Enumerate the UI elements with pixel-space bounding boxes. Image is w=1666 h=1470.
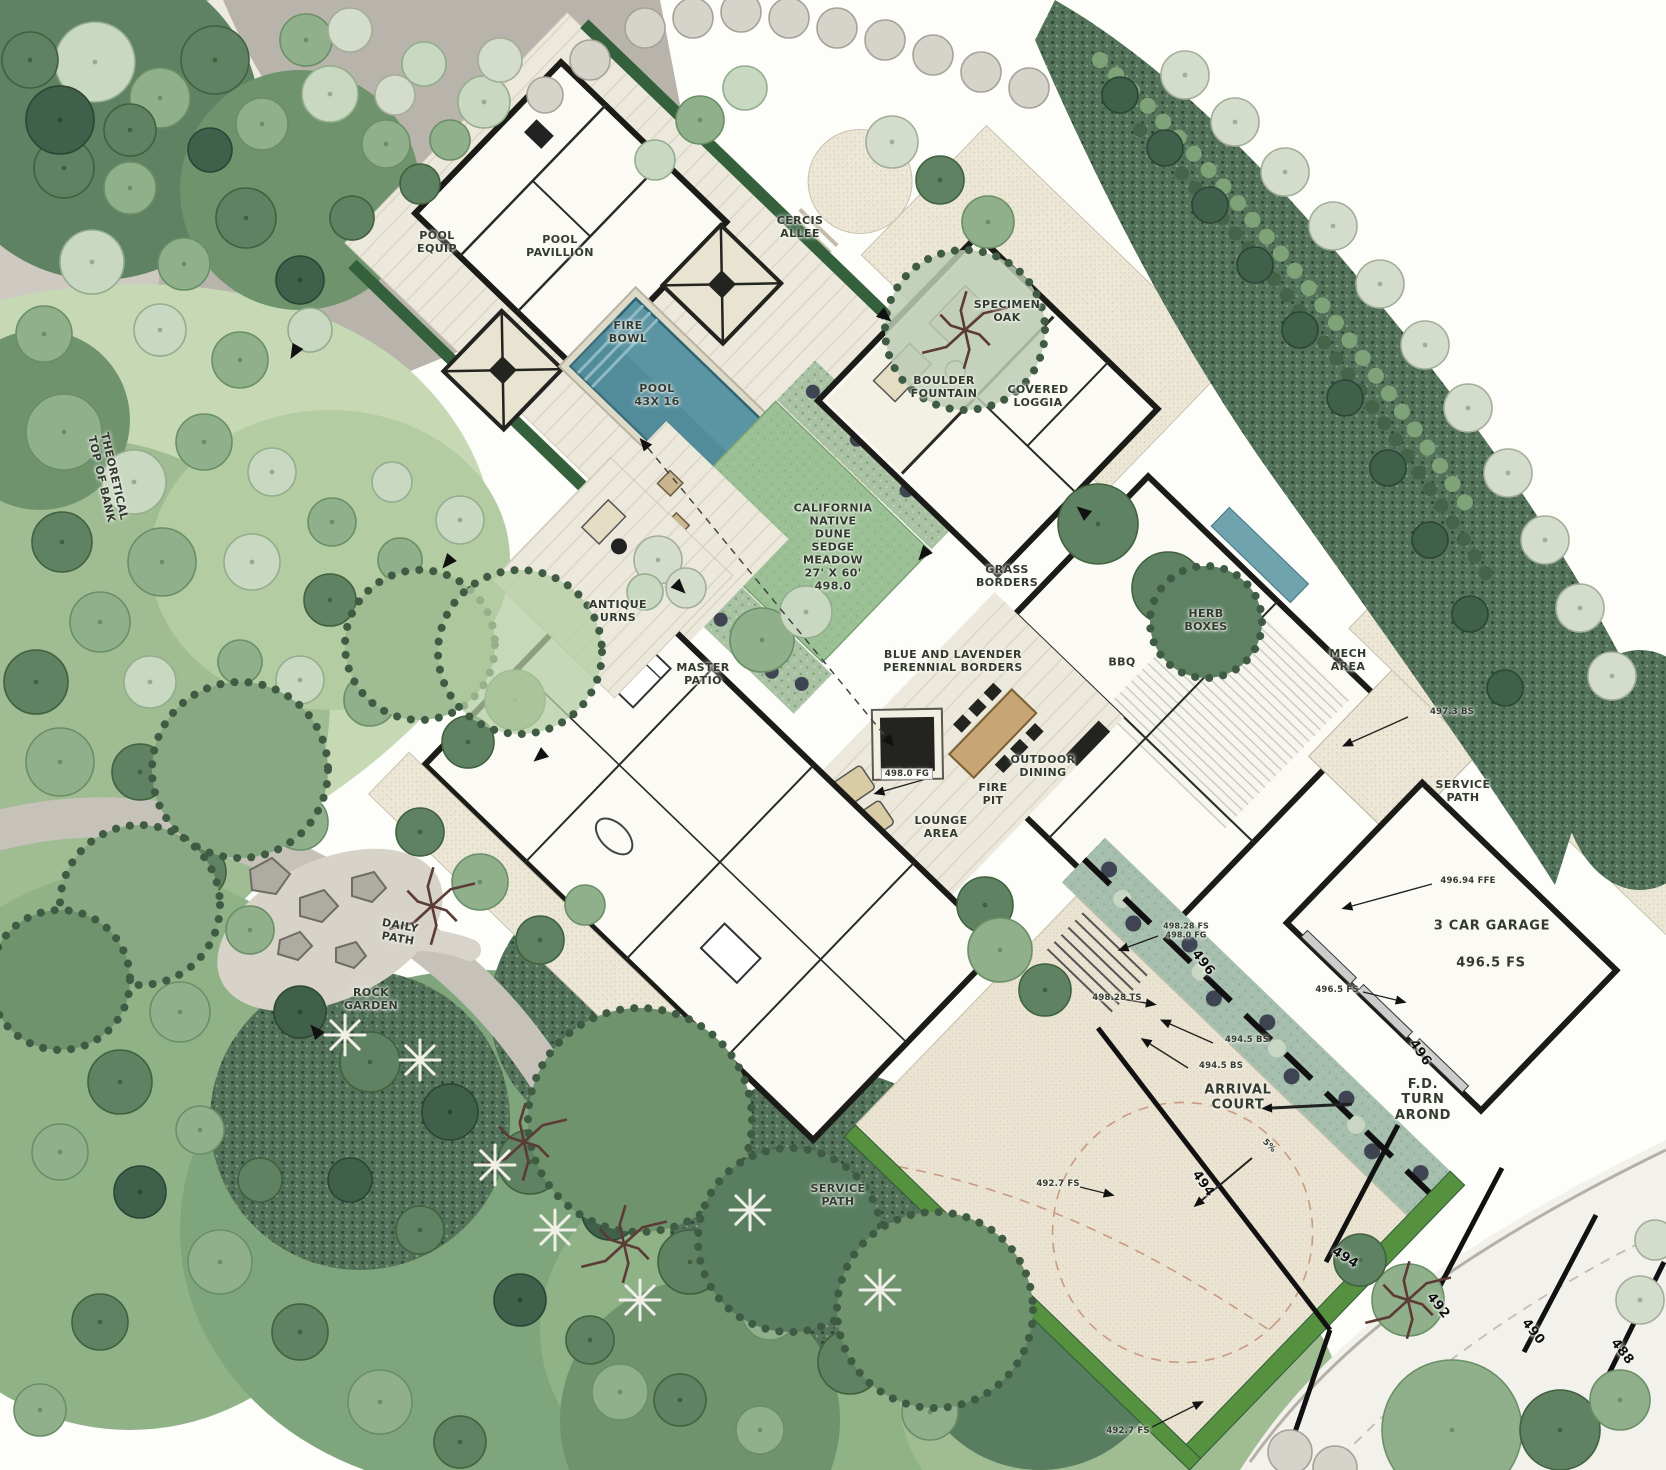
tree-symbol xyxy=(627,574,663,610)
tree-symbol xyxy=(328,1158,372,1202)
tree-symbol xyxy=(527,77,563,113)
tree-symbol xyxy=(1370,450,1406,486)
tree-symbol xyxy=(769,0,809,38)
tree-symbol xyxy=(375,75,415,115)
tree-symbol xyxy=(865,20,905,60)
tree-symbol xyxy=(330,196,374,240)
tree-symbol xyxy=(1102,77,1138,113)
tree-symbol xyxy=(723,66,767,110)
tree-symbol xyxy=(238,1158,282,1202)
tree-symbol xyxy=(673,0,713,38)
tree-symbol xyxy=(721,0,761,32)
tree-symbol xyxy=(1412,522,1448,558)
tree-symbol xyxy=(1452,596,1488,632)
tree-symbol xyxy=(817,8,857,48)
tree-symbol xyxy=(1327,380,1363,416)
tree-canopy xyxy=(438,570,602,734)
tree-symbol xyxy=(372,462,412,502)
tree-symbol xyxy=(1009,68,1049,108)
tree-symbol xyxy=(400,164,440,204)
tree-symbol xyxy=(430,120,470,160)
tree-symbol xyxy=(635,140,675,180)
fire-pit xyxy=(872,709,943,780)
tree-symbol xyxy=(188,128,232,172)
tree-symbol xyxy=(1147,130,1183,166)
tree-symbol xyxy=(218,640,262,684)
tree-symbol xyxy=(478,38,522,82)
tree-symbol xyxy=(570,40,610,80)
tree-symbol xyxy=(328,8,372,52)
tree-symbol xyxy=(1268,1430,1312,1470)
plan-drawing xyxy=(0,0,1666,1470)
tree-symbol xyxy=(961,52,1001,92)
tree-symbol xyxy=(1635,1220,1666,1260)
tree-symbol xyxy=(565,885,605,925)
tree-symbol xyxy=(913,35,953,75)
tree-canopy xyxy=(1150,566,1262,678)
tree-symbol xyxy=(625,8,665,48)
site-plan: POOL EQUIPPOOL PAVILLIONCERCIS ALLEEFIRE… xyxy=(0,0,1666,1470)
tree-canopy xyxy=(152,682,328,858)
tree-canopy xyxy=(837,1212,1033,1408)
tree-symbol xyxy=(1192,187,1228,223)
tree-symbol xyxy=(1237,247,1273,283)
tree-symbol xyxy=(1487,670,1523,706)
tree-symbol xyxy=(1282,312,1318,348)
